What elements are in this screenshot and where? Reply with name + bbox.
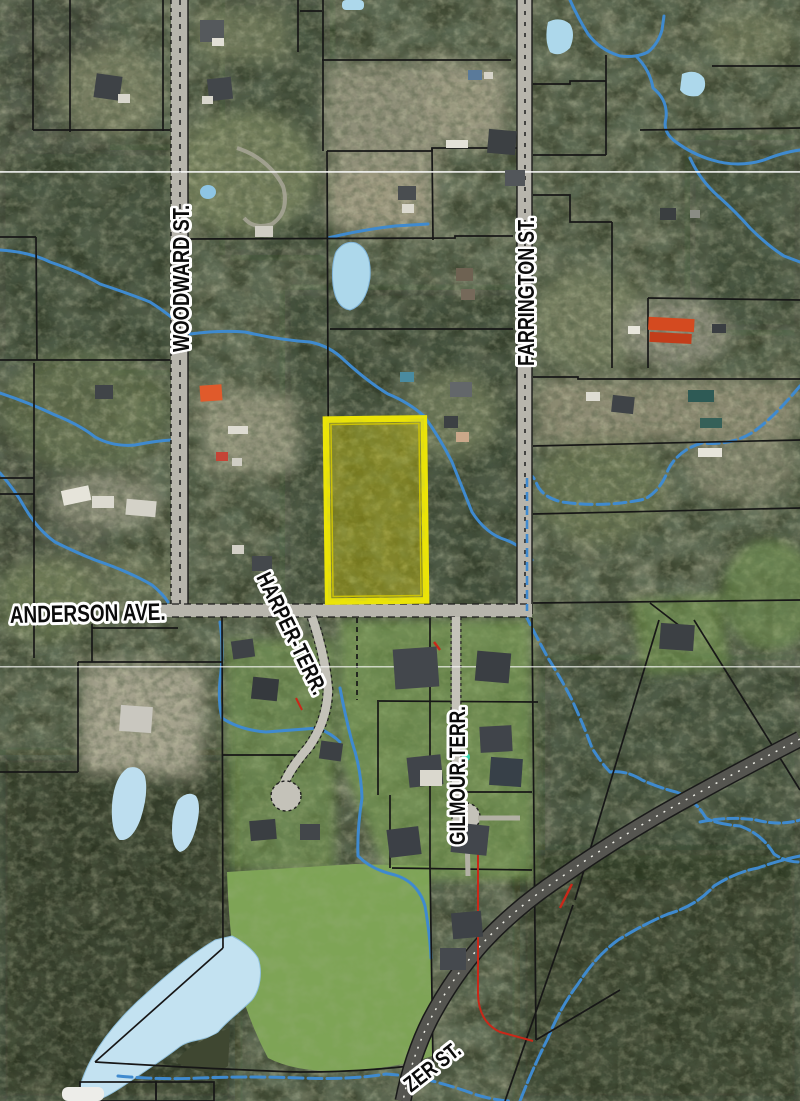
svg-text:WOODWARD ST.: WOODWARD ST.	[169, 205, 194, 352]
svg-text:FARRINGTON ST.: FARRINGTON ST.	[514, 217, 540, 366]
svg-text:GILMOUR.TERR.: GILMOUR.TERR.	[446, 706, 470, 845]
svg-text:ANDERSON AVE.: ANDERSON AVE.	[10, 598, 166, 629]
